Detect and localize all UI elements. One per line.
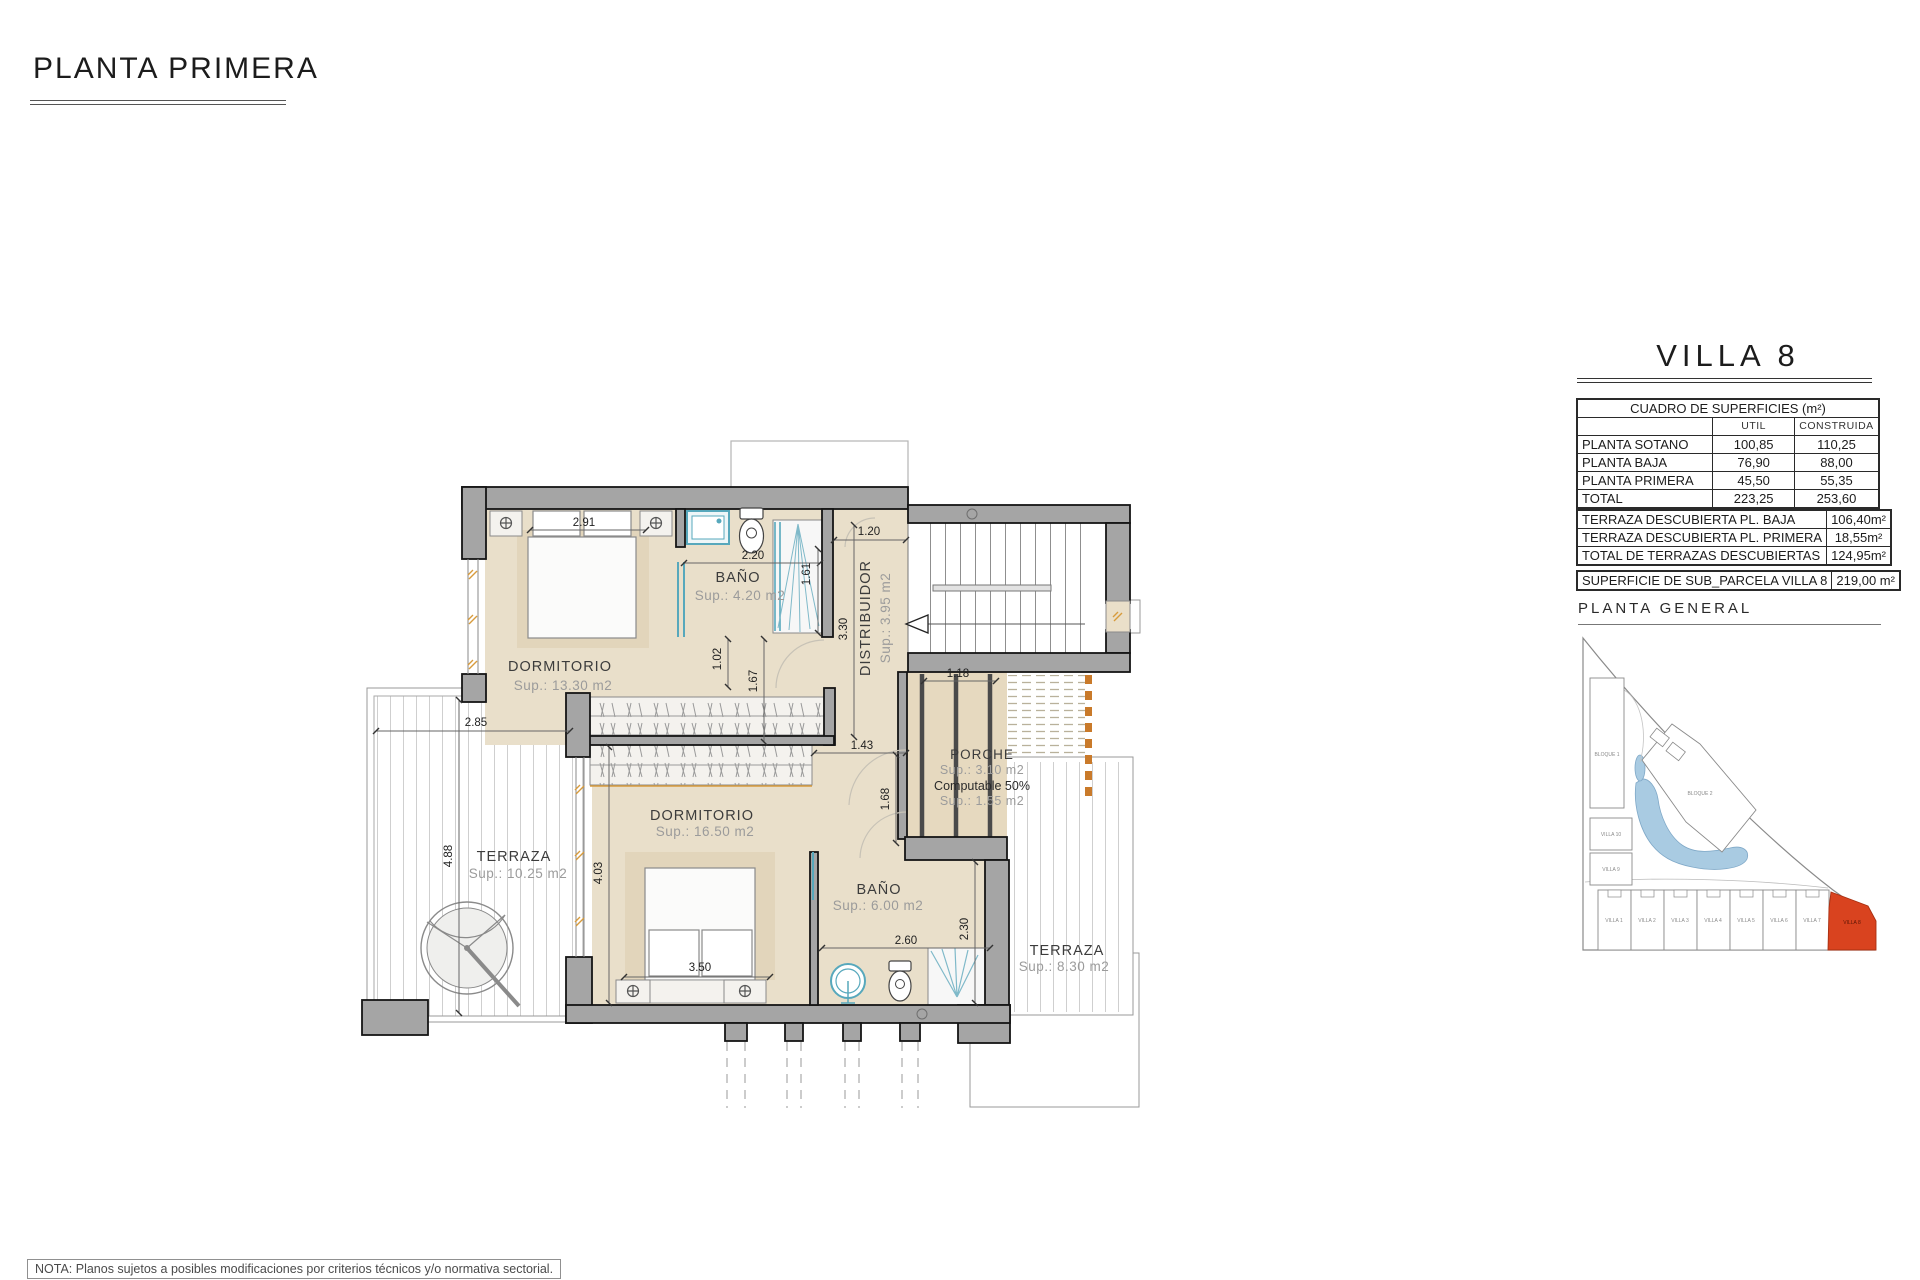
dim-220: 2.20 <box>742 550 764 562</box>
surfaces-col-construida: CONSTRUIDA <box>1794 418 1879 436</box>
page-title: PLANTA PRIMERA <box>33 52 319 86</box>
room-bano-1: BAÑO <box>715 569 760 586</box>
terraces-table: TERRAZA DESCUBIERTA PL. BAJA 106,40m² TE… <box>1576 509 1892 566</box>
dim-403: 4.03 <box>593 862 605 884</box>
row-label: TERRAZA DESCUBIERTA PL. PRIMERA <box>1577 529 1827 547</box>
dim-285: 2.85 <box>465 717 487 729</box>
blueprint-page: 2.91 2.20 1.20 1.61 3.30 1.02 1.67 2.85 … <box>0 0 1920 1280</box>
row-label: PLANTA SOTANO <box>1577 436 1713 454</box>
site-villa-9-label: VILLA 9 <box>1602 867 1620 873</box>
row-value: 18,55m² <box>1827 529 1891 547</box>
site-bloque-1-label: BLOQUE 1 <box>1594 752 1619 758</box>
room-porche-computable: Computable 50% <box>934 779 1030 793</box>
toilet-1 <box>740 508 764 553</box>
site-villa-1-label: VILLA 1 <box>1605 918 1623 924</box>
site-villa-2-label: VILLA 2 <box>1638 918 1656 924</box>
dim-488: 4.88 <box>443 845 455 867</box>
room-dormitorio-1-sup: Sup.: 13.30 m2 <box>514 678 613 693</box>
note-box: NOTA: Planos sujetos a posibles modifica… <box>27 1259 561 1279</box>
table-row: PLANTA PRIMERA 45,50 55,35 <box>1577 472 1879 490</box>
room-bano-2: BAÑO <box>856 881 901 898</box>
table-row: TOTAL DE TERRAZAS DESCUBIERTAS 124,95m² <box>1577 547 1891 566</box>
dim-143: 1.43 <box>851 740 873 752</box>
row-construida: 88,00 <box>1794 454 1879 472</box>
parcel-value: 219,00 m² <box>1832 571 1900 590</box>
row-value: 124,95m² <box>1827 547 1891 566</box>
surfaces-table-title: CUADRO DE SUPERFICIES (m²) <box>1577 399 1879 418</box>
site-villas-row: VILLA 1 VILLA 2 VILLA 3 VILLA 4 VILLA 5 … <box>1598 890 1829 950</box>
site-villa-10-label: VILLA 10 <box>1601 832 1622 838</box>
parcel-label: SUPERFICIE DE SUB_PARCELA VILLA 8 <box>1577 571 1832 590</box>
room-dormitorio-2-sup: Sup.: 16.50 m2 <box>656 824 755 839</box>
title-underline-2 <box>30 104 286 105</box>
row-label: TOTAL <box>1577 490 1713 509</box>
porch-open-wall <box>1085 675 1092 796</box>
site-villa-3-label: VILLA 3 <box>1671 918 1689 924</box>
room-distribuidor: DISTRIBUIDOR <box>858 560 874 676</box>
site-bloque-2-label: BLOQUE 2 <box>1687 791 1712 797</box>
table-row: TERRAZA DESCUBIERTA PL. BAJA 106,40m² <box>1577 510 1891 529</box>
site-bloque-1 <box>1590 678 1624 808</box>
site-villa-7-label: VILLA 7 <box>1803 918 1821 924</box>
villa-title-underline-2 <box>1577 382 1872 383</box>
room-distribuidor-sup: Sup.: 3.95 m2 <box>878 573 893 664</box>
toilet-2 <box>889 961 911 1001</box>
row-label: TOTAL DE TERRAZAS DESCUBIERTAS <box>1577 547 1827 566</box>
site-villa-6-label: VILLA 6 <box>1770 918 1788 924</box>
dim-330: 3.30 <box>838 618 850 640</box>
room-porche-sup2: Sup.: 1.55 m2 <box>940 794 1024 808</box>
dim-230: 2.30 <box>959 918 971 940</box>
room-bano-1-sup: Sup.: 4.20 m2 <box>695 588 786 603</box>
table-row: TOTAL 223,25 253,60 <box>1577 490 1879 509</box>
villa-title-underline-1 <box>1577 378 1872 379</box>
room-terraza-2: TERRAZA <box>1030 943 1105 959</box>
row-label: PLANTA PRIMERA <box>1577 472 1713 490</box>
room-dormitorio-1: DORMITORIO <box>508 659 612 675</box>
dim-260: 2.60 <box>895 935 917 947</box>
dim-161: 1.61 <box>801 563 813 585</box>
row-util: 223,25 <box>1713 490 1795 509</box>
room-porche-sup: Sup.: 3.10 m2 <box>940 763 1024 777</box>
surfaces-col-util: UTIL <box>1713 418 1795 436</box>
table-row: PLANTA SOTANO 100,85 110,25 <box>1577 436 1879 454</box>
stairwell <box>906 523 1140 653</box>
planta-general-title: PLANTA GENERAL <box>1578 600 1752 617</box>
row-construida: 110,25 <box>1794 436 1879 454</box>
planta-general-underline <box>1578 624 1881 625</box>
table-row: TERRAZA DESCUBIERTA PL. PRIMERA 18,55m² <box>1577 529 1891 547</box>
bed-1 <box>490 511 672 648</box>
floor-plan: 2.91 2.20 1.20 1.61 3.30 1.02 1.67 2.85 … <box>362 441 1140 1108</box>
dim-118: 1.18 <box>947 668 969 680</box>
site-villa-8-label: VILLA 8 <box>1843 920 1861 926</box>
row-value: 106,40m² <box>1827 510 1891 529</box>
site-plan: BLOQUE 1 BLOQUE 2 VILLA 10 VILLA 9 <box>1583 638 1876 950</box>
room-dormitorio-2: DORMITORIO <box>650 808 754 824</box>
row-construida: 55,35 <box>1794 472 1879 490</box>
dim-291: 2.91 <box>573 517 595 529</box>
table-row: PLANTA BAJA 76,90 88,00 <box>1577 454 1879 472</box>
dim-120: 1.20 <box>858 526 880 538</box>
room-terraza-2-sup: Sup.: 8.30 m2 <box>1019 959 1110 974</box>
row-util: 45,50 <box>1713 472 1795 490</box>
dim-168: 1.68 <box>880 788 892 810</box>
room-terraza-1: TERRAZA <box>477 849 552 865</box>
site-villa-4-label: VILLA 4 <box>1704 918 1722 924</box>
parcel-table: SUPERFICIE DE SUB_PARCELA VILLA 8 219,00… <box>1576 570 1901 591</box>
shower-2 <box>928 948 985 1013</box>
dim-350: 3.50 <box>689 962 711 974</box>
dim-167: 1.67 <box>748 670 760 692</box>
room-terraza-1-sup: Sup.: 10.25 m2 <box>469 866 568 881</box>
drawing-surface: 2.91 2.20 1.20 1.61 3.30 1.02 1.67 2.85 … <box>0 0 1920 1280</box>
row-util: 100,85 <box>1713 436 1795 454</box>
surfaces-table: CUADRO DE SUPERFICIES (m²) UTIL CONSTRUI… <box>1576 398 1880 509</box>
table-row: SUPERFICIE DE SUB_PARCELA VILLA 8 219,00… <box>1577 571 1900 590</box>
title-underline-1 <box>30 100 286 101</box>
lower-columns <box>727 1042 918 1108</box>
site-villa-5-label: VILLA 5 <box>1737 918 1755 924</box>
dim-102: 1.02 <box>712 648 724 670</box>
row-construida: 253,60 <box>1794 490 1879 509</box>
room-bano-2-sup: Sup.: 6.00 m2 <box>833 898 924 913</box>
row-util: 76,90 <box>1713 454 1795 472</box>
room-porche: PORCHE <box>950 747 1014 762</box>
shower-1 <box>773 520 823 633</box>
bed-2 <box>616 852 775 1003</box>
row-label: TERRAZA DESCUBIERTA PL. BAJA <box>1577 510 1827 529</box>
sink-1 <box>687 511 729 544</box>
row-label: PLANTA BAJA <box>1577 454 1713 472</box>
villa-title: VILLA 8 <box>1576 338 1880 374</box>
